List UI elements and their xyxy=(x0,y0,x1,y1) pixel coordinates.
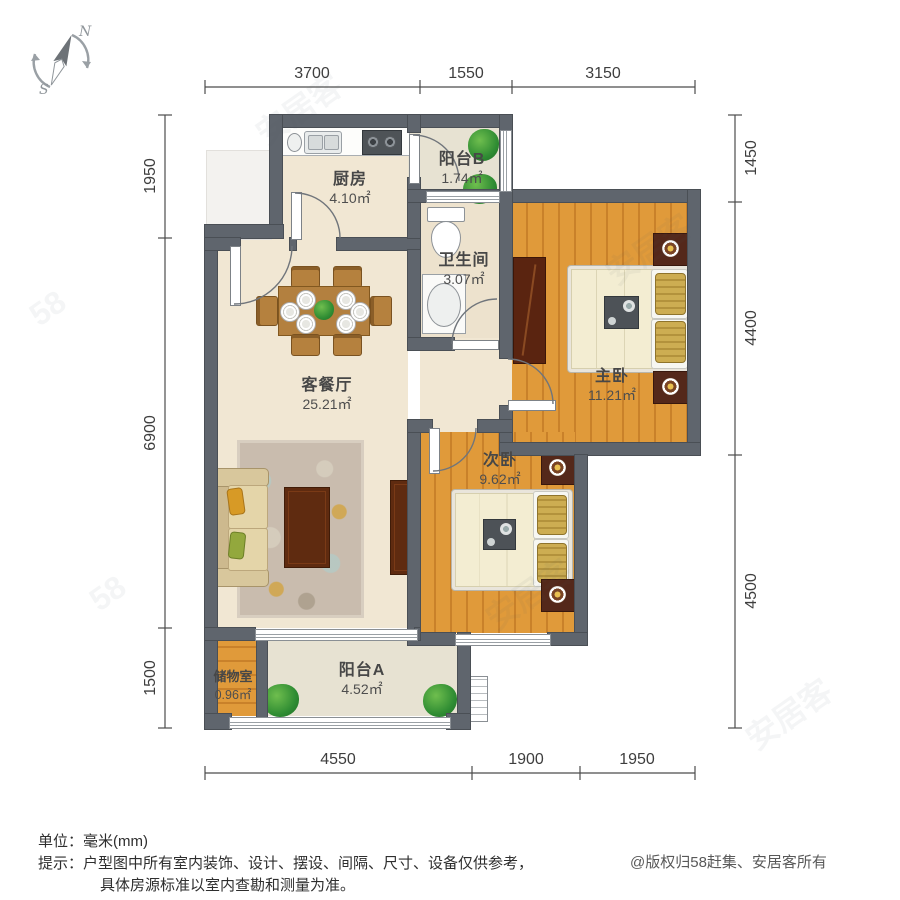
stove-burner xyxy=(384,136,396,148)
balcony-b-bottom-window xyxy=(426,191,500,203)
tip-note-line2: 具体房源标准以室内查勘和测量为准。 xyxy=(38,875,533,897)
bathroom-label: 卫生间 3.07㎡ xyxy=(438,252,489,288)
storage-label: 储物室 0.96㎡ xyxy=(213,668,252,704)
bedroom2-door-leaf xyxy=(429,428,440,474)
coffee-table xyxy=(284,487,330,568)
dining-chair xyxy=(291,334,320,356)
dim-top-3: 3150 xyxy=(585,65,621,83)
dim-left-2: 6900 xyxy=(142,415,160,451)
second-bedroom-label: 次卧 9.62㎡ xyxy=(479,452,520,488)
dim-left-3: 1500 xyxy=(142,660,160,696)
storage-area: 0.96㎡ xyxy=(213,686,252,704)
tip-note-line1: 提示：户型图中所有室内装饰、设计、摆设、间隔、尺寸、设备仅供参考， xyxy=(38,853,533,875)
wall-bedroom2-top-b xyxy=(478,420,512,432)
plate xyxy=(350,302,370,322)
dim-right-3: 4500 xyxy=(743,573,761,609)
bedroom2-nightstand xyxy=(541,452,575,485)
wall-bedroom2-right xyxy=(575,455,587,645)
wall-master-bottom xyxy=(500,443,700,455)
living-dining-area: 25.21㎡ xyxy=(301,395,352,413)
compass-ring xyxy=(34,35,89,87)
bedroom2-bed-tray xyxy=(483,519,516,550)
wall-bathroom-left xyxy=(408,250,420,350)
dim-right-1: 1450 xyxy=(743,140,761,176)
master-door-gap-floor xyxy=(500,358,512,406)
wall-bathroom-bottom xyxy=(408,338,454,350)
compass-ring-arrowhead xyxy=(31,54,40,61)
balcony-b-name: 阳台B xyxy=(439,151,486,169)
balcony-a-name: 阳台A xyxy=(339,662,386,680)
compass-south-label: S xyxy=(39,82,49,98)
bedroom2-pillow-gold xyxy=(537,543,567,583)
lamp xyxy=(662,378,679,395)
compass: N S xyxy=(22,18,100,106)
bedroom2-nightstand xyxy=(541,579,575,612)
wall-topleft-corner xyxy=(205,225,283,238)
dim-top-1: 3700 xyxy=(294,65,330,83)
living-dining-label: 客餐厅 25.21㎡ xyxy=(301,377,352,413)
wall-kitchen-balconyb-a xyxy=(408,115,420,132)
bathroom-area: 3.07㎡ xyxy=(438,270,489,288)
dim-bottom-2: 1900 xyxy=(508,751,544,769)
dim-right-2: 4400 xyxy=(743,310,761,346)
master-pillow-gold xyxy=(655,273,686,315)
kettle xyxy=(287,133,302,152)
sofa-pillow-green xyxy=(228,531,247,560)
balcony-b-area: 1.74㎡ xyxy=(439,169,486,187)
dim-bottom-3: 1950 xyxy=(619,751,655,769)
dining-chair xyxy=(333,334,362,356)
ac-platform xyxy=(468,676,488,722)
wall-bedroom2-bottom-b xyxy=(548,633,587,645)
wall-living-bottom-a xyxy=(205,628,255,640)
watermark: 58 xyxy=(83,568,133,619)
bathroom-name: 卫生间 xyxy=(438,252,489,270)
wall-top xyxy=(270,115,512,127)
lamp xyxy=(549,459,566,476)
living-sliding-door xyxy=(255,629,418,641)
plate xyxy=(296,314,316,334)
lamp xyxy=(549,586,566,603)
second-bedroom-area: 9.62㎡ xyxy=(479,470,520,488)
wall-kitchen-balconyb-b xyxy=(408,178,420,238)
master-wardrobe xyxy=(513,257,546,364)
balcony-a-label: 阳台A 4.52㎡ xyxy=(339,662,386,698)
wall-kitchen-left xyxy=(270,115,282,238)
plate xyxy=(280,302,300,322)
balcony-b-door-leaf xyxy=(409,134,420,184)
kitchen-door-gap-floor xyxy=(296,238,337,250)
sink-basin-left xyxy=(308,135,323,150)
compass-ring-arrowhead xyxy=(82,61,91,68)
bedroom2-window xyxy=(455,634,551,646)
storage-name: 储物室 xyxy=(213,668,252,686)
unit-note: 单位：毫米(mm) xyxy=(38,831,533,853)
kitchen-door-leaf xyxy=(291,192,302,240)
balcony-b-label: 阳台B 1.74㎡ xyxy=(439,151,486,187)
wall-right-outer xyxy=(688,190,700,455)
dim-bottom-1: 4550 xyxy=(320,751,356,769)
lamp xyxy=(662,240,679,257)
sink-basin-right xyxy=(324,135,339,150)
master-bedroom-area: 11.21㎡ xyxy=(588,386,636,404)
master-door-leaf xyxy=(508,400,556,411)
living-dining-name: 客餐厅 xyxy=(301,377,352,395)
dining-chair xyxy=(256,296,278,326)
master-pillow-gold xyxy=(655,321,686,363)
rail-end-left xyxy=(205,714,231,729)
compass-needle xyxy=(45,32,78,87)
wall-living-top-c xyxy=(337,238,420,250)
footer-notes: 单位：毫米(mm) 提示：户型图中所有室内装饰、设计、摆设、间隔、尺寸、设备仅供… xyxy=(38,831,533,897)
bedroom2-pillow-gold xyxy=(537,495,567,535)
toilet-tank xyxy=(427,207,465,222)
kitchen-label: 厨房 4.10㎡ xyxy=(329,171,370,207)
master-nightstand xyxy=(653,371,690,404)
wall-left-outer xyxy=(205,225,217,728)
dining-chair xyxy=(333,266,362,288)
balcony-a-area: 4.52㎡ xyxy=(339,680,386,698)
kitchen-area: 4.10㎡ xyxy=(329,189,370,207)
master-nightstand xyxy=(653,233,690,266)
kitchen-name: 厨房 xyxy=(329,171,370,189)
compass-north-label: N xyxy=(78,24,92,40)
master-bedroom-label: 主卧 11.21㎡ xyxy=(588,368,636,404)
dim-top-2: 1550 xyxy=(448,65,484,83)
stove-burner xyxy=(367,136,379,148)
balcony-b-window xyxy=(500,130,512,192)
wall-bedroom2-left xyxy=(408,420,420,645)
second-bedroom-name: 次卧 xyxy=(479,452,520,470)
dining-chair xyxy=(370,296,392,326)
entry-door-leaf xyxy=(230,246,241,306)
balcony-a-railing-window xyxy=(229,717,451,729)
kitchen-stove xyxy=(362,130,402,155)
bathroom-door-leaf xyxy=(452,340,499,350)
master-bedroom-name: 主卧 xyxy=(588,368,636,386)
dim-left-1: 1950 xyxy=(142,158,160,194)
watermark: 安居客 xyxy=(735,667,840,760)
copyright-note: @版权归58赶集、安居客所有 xyxy=(630,851,827,872)
hallway-floor xyxy=(420,338,500,420)
bathroom-sink-basin xyxy=(427,283,461,327)
dining-chair xyxy=(291,266,320,288)
kitchen-sink xyxy=(304,131,342,154)
wall-storage-right xyxy=(257,640,267,717)
floorplan-page: N S 3700 1550 3150 4550 1900 1950 1950 6… xyxy=(0,0,900,900)
master-bed-tray xyxy=(604,296,639,329)
watermark: 58 xyxy=(23,283,73,334)
